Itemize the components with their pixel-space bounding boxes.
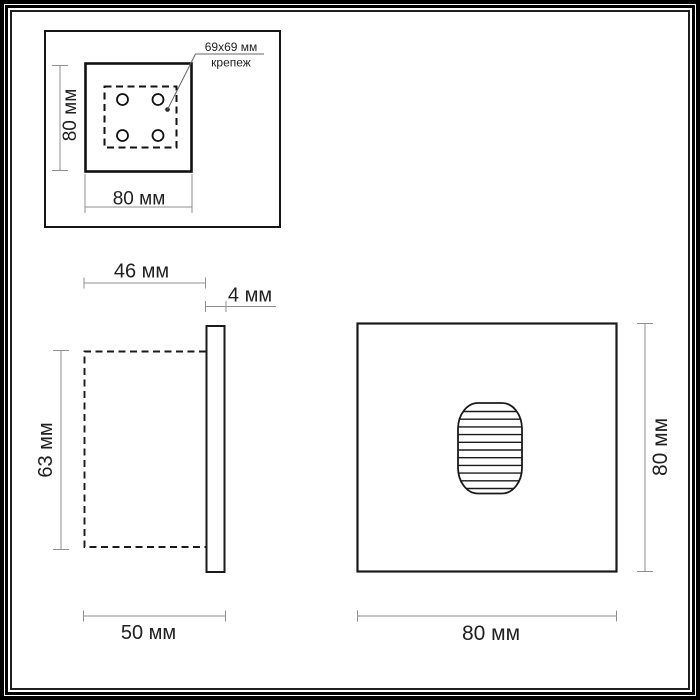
mounting-width-label: 80 мм: [113, 189, 166, 210]
recess-depth-label: 46 мм: [114, 261, 169, 283]
louver-opening-outline: [458, 403, 522, 494]
screw-hole: [153, 130, 164, 141]
total-depth-label: 50 мм: [121, 622, 176, 644]
body-height-label: 63 мм: [35, 422, 57, 477]
screw-hole: [117, 94, 128, 105]
mount-size-annotation: 69x69 мм: [205, 40, 258, 54]
technical-drawing-svg: 69x69 мм крепеж 80 мм 80 мм 46 мм 4 мм: [0, 0, 700, 700]
dimension-drawing-page: 69x69 мм крепеж 80 мм 80 мм 46 мм 4 мм: [0, 0, 700, 700]
mounting-view: 69x69 мм крепеж 80 мм 80 мм: [45, 31, 280, 227]
mounting-height-label: 80 мм: [60, 89, 81, 142]
louver-slats: [456, 412, 524, 489]
mount-type-annotation: крепеж: [211, 56, 251, 70]
recessed-body-dashed: [85, 352, 207, 548]
front-view: 80 мм 80 мм: [358, 324, 673, 646]
screw-hole: [117, 130, 128, 141]
mounting-holes-dashed-box: [105, 87, 177, 148]
front-height-label: 80 мм: [649, 418, 672, 476]
faceplate-outline: [207, 326, 225, 572]
front-width-label: 80 мм: [462, 622, 520, 645]
side-view: 46 мм 4 мм 63 мм 50 мм: [35, 261, 276, 645]
front-faceplate-outline: [358, 324, 617, 572]
faceplate-thickness-label: 4 мм: [228, 285, 272, 307]
screw-hole: [153, 94, 164, 105]
mounting-plate-outline: [86, 64, 192, 172]
